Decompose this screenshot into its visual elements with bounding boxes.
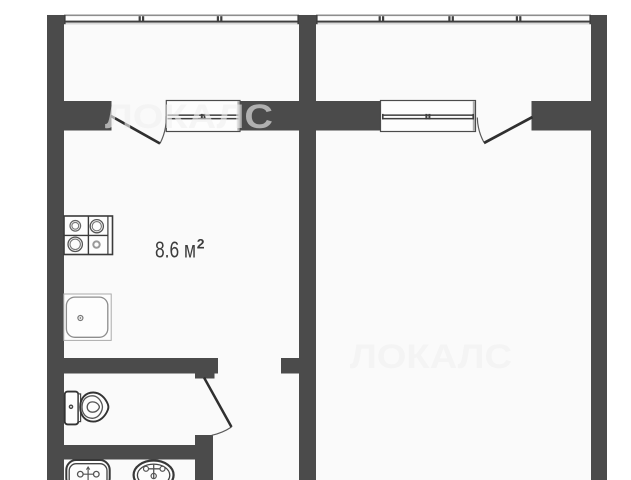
svg-text:ЛОКАЛС: ЛОКАЛС [350,338,512,376]
svg-text:8.6 м: 8.6 м [155,237,196,263]
svg-text:ЛОКАЛС: ЛОКАЛС [105,98,273,136]
svg-text:2: 2 [197,236,205,252]
